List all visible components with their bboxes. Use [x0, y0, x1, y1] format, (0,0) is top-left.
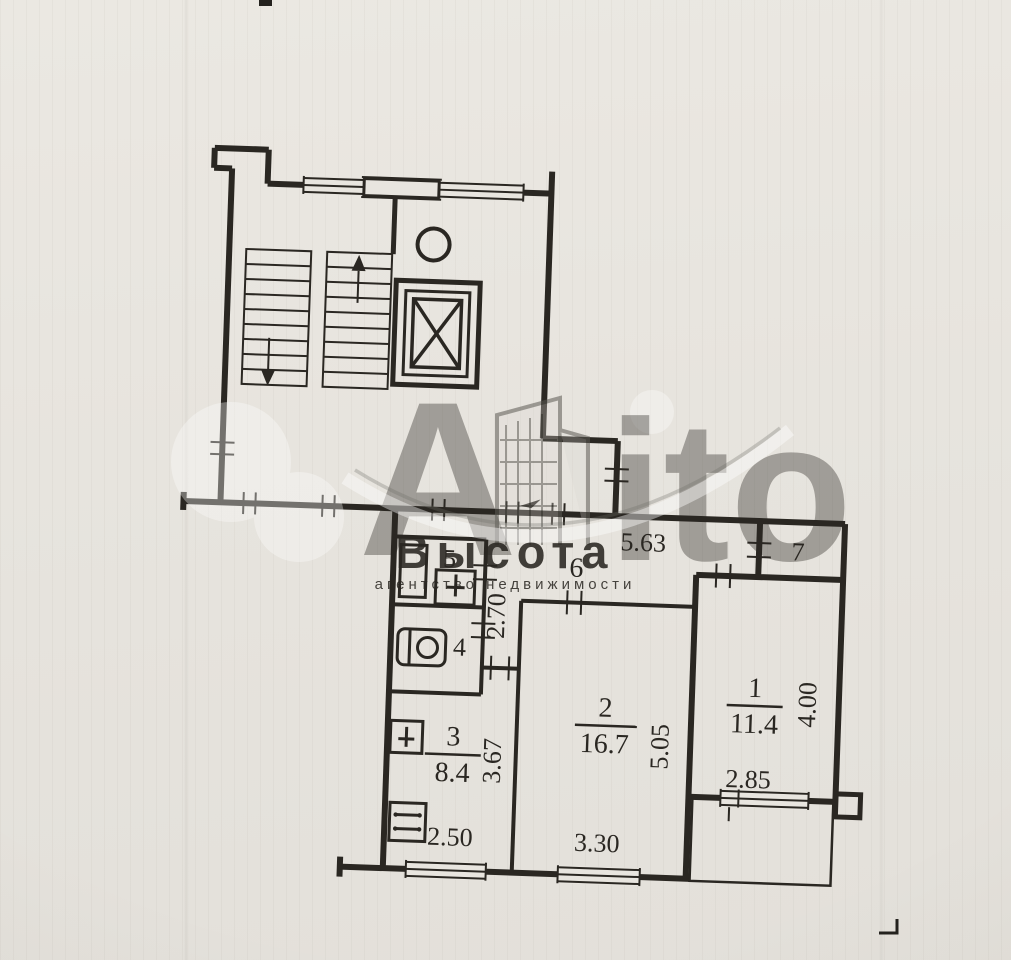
dim-kitchen-width: 2.50 [427, 822, 473, 853]
room-3-area: 8.4 [434, 757, 470, 789]
kitchen-window [405, 860, 486, 881]
dim-room2-length: 5.05 [644, 723, 675, 769]
balcony [690, 797, 834, 886]
kitchen-sink-icon [390, 720, 423, 753]
dim-room1-length: 4.00 [792, 682, 823, 728]
stair-arrow-down [261, 338, 277, 386]
room-1-area: 11.4 [730, 708, 779, 741]
floorplan-drawing: 1 11.4 2 16.7 3 8.4 4 5 6 7 5.63 2.50 3.… [0, 0, 1011, 960]
watermark-letters-ito: ito [608, 380, 852, 603]
wall-flange [835, 794, 861, 818]
watermark-avito: A ito Высота агентство недвижимости [171, 356, 852, 603]
dim-room1-width: 2.85 [725, 764, 771, 795]
room-2-number: 2 [598, 693, 613, 724]
stair-treads-left [242, 264, 311, 371]
stove-icon [389, 802, 426, 841]
watermark-agency: Высота [396, 525, 615, 578]
room-3-number: 3 [446, 721, 461, 752]
dim-room2-width: 3.30 [574, 828, 620, 859]
stair-lobby-wall [393, 194, 395, 254]
stair-arrow-up [350, 255, 366, 303]
room-1-number: 1 [748, 673, 763, 704]
garbage-chute-icon [417, 228, 450, 261]
toilet-icon [397, 629, 446, 667]
wall-pier [363, 178, 440, 199]
dim-kitchen-length: 3.67 [477, 738, 508, 784]
room-2-area: 16.7 [579, 728, 629, 761]
room2-window [557, 865, 640, 886]
room-4-number: 4 [453, 632, 467, 661]
watermark-agency-subtitle: агентство недвижимости [375, 576, 636, 593]
stairwell-window-1 [303, 176, 364, 196]
stairs-left-flight [242, 249, 312, 386]
stairwell-window-2 [439, 181, 524, 202]
floorplan-photo: 1 11.4 2 16.7 3 8.4 4 5 6 7 5.63 2.50 3.… [0, 0, 1011, 960]
